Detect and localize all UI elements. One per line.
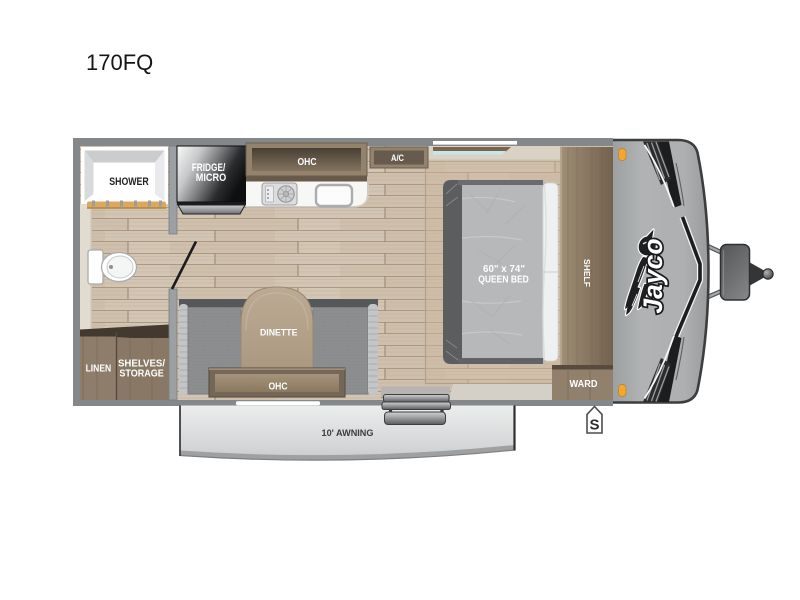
svg-text:SHELF: SHELF <box>582 259 592 287</box>
svg-text:MICRO: MICRO <box>196 172 227 184</box>
svg-text:Jayco: Jayco <box>638 238 668 313</box>
svg-text:A/C: A/C <box>391 153 404 163</box>
svg-text:DINETTE: DINETTE <box>260 328 298 338</box>
svg-text:OHC: OHC <box>298 157 317 168</box>
svg-text:LINEN: LINEN <box>86 364 112 375</box>
svg-text:QUEEN BED: QUEEN BED <box>478 275 529 286</box>
svg-text:WARD: WARD <box>570 379 598 390</box>
svg-text:STORAGE: STORAGE <box>119 368 164 379</box>
svg-text:60" x 74": 60" x 74" <box>483 264 525 275</box>
svg-text:170FQ: 170FQ <box>86 50 153 75</box>
svg-text:SHOWER: SHOWER <box>109 176 149 188</box>
svg-text:S: S <box>589 417 599 434</box>
svg-text:10' AWNING: 10' AWNING <box>322 428 374 438</box>
svg-text:OHC: OHC <box>269 382 288 393</box>
